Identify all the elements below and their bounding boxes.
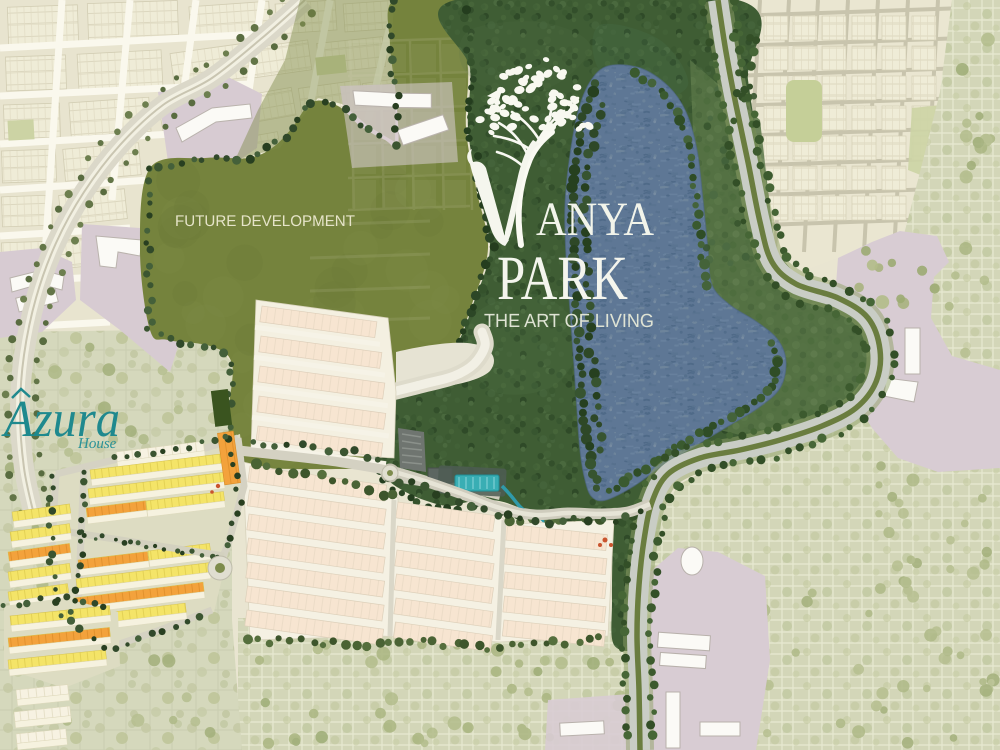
svg-text:ANYA: ANYA [536,193,654,246]
svg-text:FUTURE DEVELOPMENT: FUTURE DEVELOPMENT [175,213,356,230]
svg-text:PARK: PARK [497,243,628,313]
svg-text:THE ART OF LIVING: THE ART OF LIVING [484,311,654,332]
svg-text:House: House [77,436,117,452]
